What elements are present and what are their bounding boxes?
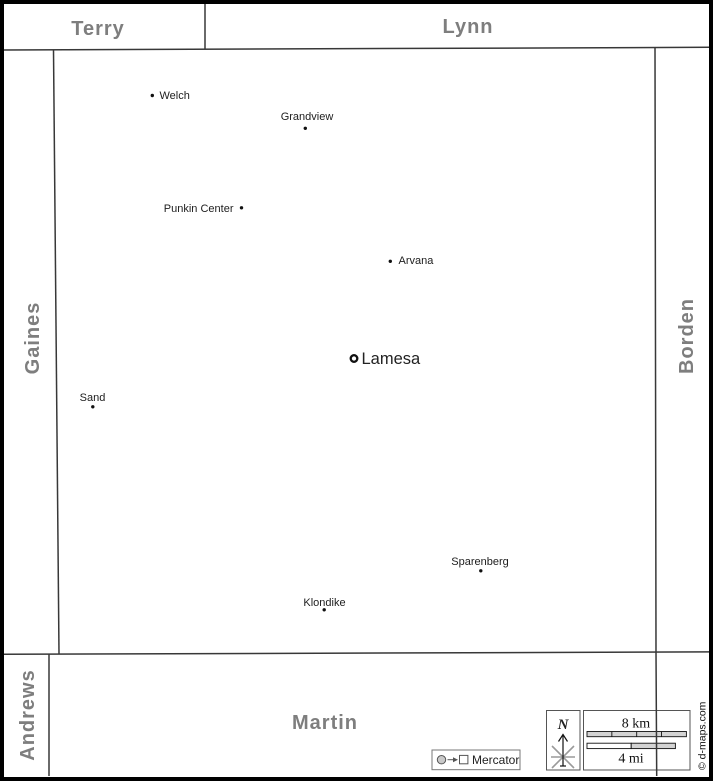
compass-rose: N [547,711,581,771]
town-label: Sand [80,392,106,404]
neighbor-andrews-label: Andrews [17,669,39,760]
north-label: N [557,717,570,733]
town-dot [323,608,326,611]
credit-label: © d-maps.com [697,701,709,770]
county-seat-lamesa: Lamesa [351,350,421,368]
neighbor-borden-label: Borden [676,298,698,374]
town-dot [91,405,94,408]
scale-bar: 8 km 4 mi [584,711,691,771]
county-seat-label: Lamesa [362,350,422,368]
town-punkin-center: Punkin Center [164,203,243,215]
town-label: Punkin Center [164,203,234,215]
town-dot [151,94,154,97]
town-label: Grandview [281,111,334,123]
town-dot [240,206,243,209]
neighbor-lynn-label: Lynn [442,16,493,38]
town-label: Arvana [399,255,435,267]
town-dot [479,569,482,572]
map-background [0,0,713,781]
scale-km-bar [587,732,686,737]
flat-map-icon [460,755,468,763]
scale-km-label: 8 km [622,717,651,732]
county-map: N 8 km 4 mi Mercator [0,0,713,781]
projection-legend: Mercator [432,750,520,770]
scale-mi-label: 4 mi [618,752,643,767]
neighbor-terry-label: Terry [71,18,125,40]
map-canvas: N 8 km 4 mi Mercator [0,0,713,781]
neighbor-martin-label: Martin [292,712,358,734]
town-dot [389,260,392,263]
scale-mi-bar [587,743,675,748]
projection-label: Mercator [472,753,519,767]
town-label: Sparenberg [451,556,509,568]
neighbor-gaines-label: Gaines [22,302,44,375]
town-label: Welch [160,90,190,102]
globe-icon [437,756,445,764]
town-label: Klondike [303,597,345,609]
county-seat-marker [351,355,358,362]
town-dot [304,127,307,130]
